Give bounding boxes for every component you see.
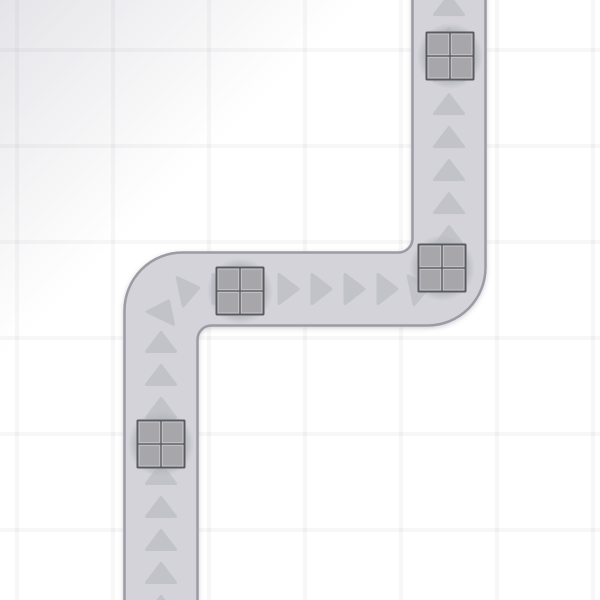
crate-cell <box>218 292 239 313</box>
crate-cell <box>162 422 183 443</box>
crate-4[interactable] <box>137 420 186 469</box>
crate-cell <box>451 57 472 78</box>
crate-cell <box>241 269 262 290</box>
crate-cell <box>218 269 239 290</box>
conveyor-road <box>125 0 486 600</box>
crate-1[interactable] <box>426 32 475 81</box>
crate-cell <box>162 445 183 466</box>
crate-3[interactable] <box>216 267 265 316</box>
crate-cell <box>420 246 441 267</box>
game-viewport <box>0 0 600 600</box>
crate-cell <box>428 34 449 55</box>
crate-cell <box>420 269 441 290</box>
crate-cell <box>428 57 449 78</box>
crate-cell <box>139 445 160 466</box>
crate-cell <box>443 269 464 290</box>
crate-2[interactable] <box>418 244 467 293</box>
crate-cell <box>241 292 262 313</box>
crate-cell <box>139 422 160 443</box>
game-scene <box>0 0 600 600</box>
crate-cell <box>451 34 472 55</box>
crate-cell <box>443 246 464 267</box>
